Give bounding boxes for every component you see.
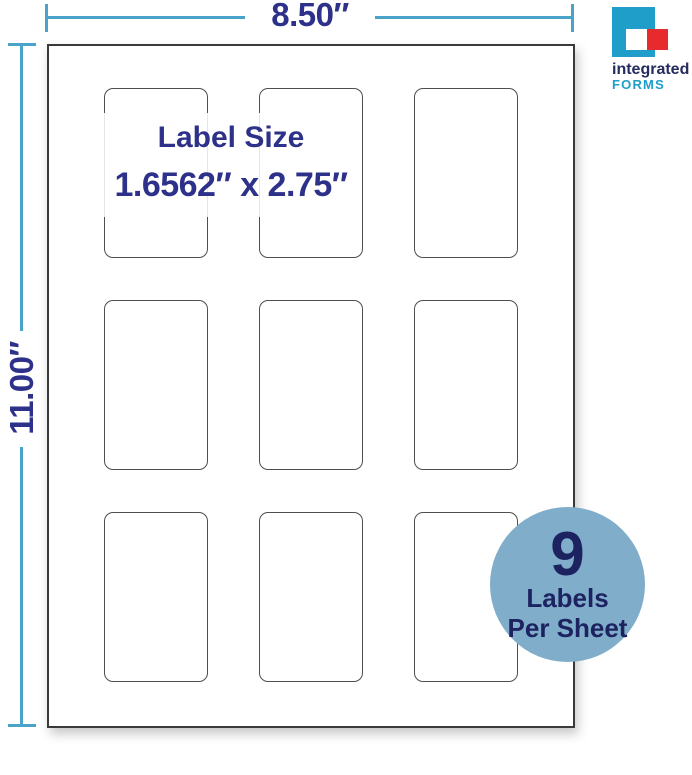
badge-count: 9 [490,527,645,583]
top-dimension-right-tick [571,4,574,32]
sheet-height-dimension-label: 11.00″ [3,341,41,435]
left-dimension-line-bottom [20,447,23,725]
logo-mark-icon [612,7,655,57]
label-cell [104,300,208,470]
left-dimension-line-top [20,46,23,331]
integrated-forms-logo: integrated FORMS [612,7,692,92]
label-size-value: 1.6562″ x 2.75″ [101,166,361,205]
logo-white-square [626,29,647,50]
label-cell [259,512,363,682]
logo-red-square [647,29,668,50]
logo-brand-subname: FORMS [612,78,692,92]
label-size-callout: Label Size 1.6562″ x 2.75″ [101,113,361,217]
badge-line2: Per Sheet [490,613,645,643]
label-cell [414,88,518,258]
top-dimension-line-right [375,16,573,19]
label-cell [104,512,208,682]
label-cell [259,300,363,470]
label-cell [414,300,518,470]
badge-line1: Labels [490,583,645,613]
logo-brand-name: integrated [612,62,692,78]
label-size-title: Label Size [101,121,361,155]
top-dimension-line-left [46,16,245,19]
left-dimension-bottom-tick [8,724,36,727]
labels-per-sheet-badge: 9 Labels Per Sheet [490,507,645,662]
sheet-width-dimension-label: 8.50″ [245,0,375,34]
